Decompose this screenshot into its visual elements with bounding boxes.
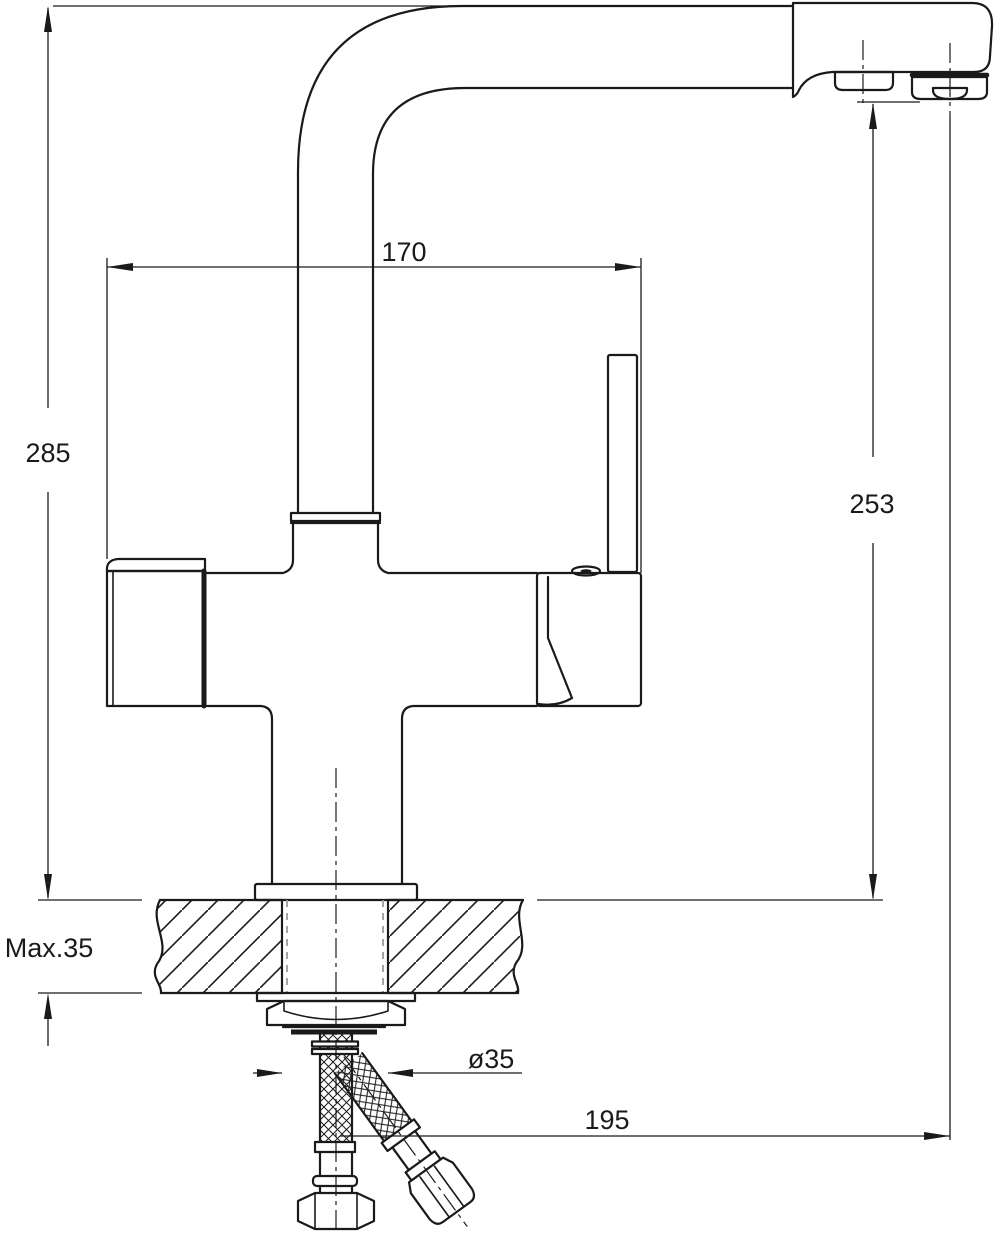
hose-collar-disc-lower: [312, 1049, 358, 1054]
dim-285-arrow-down: [44, 874, 52, 900]
dim-d35-arrow-right-tip: [257, 1069, 282, 1077]
body-right-profile: [378, 521, 537, 573]
filter-knob-cap: [107, 559, 205, 571]
hose-collar-disc-upper: [312, 1042, 358, 1047]
aerator-outlet: [835, 72, 893, 90]
hose-crimp-plate: [291, 1030, 377, 1035]
dim-170-label: 170: [381, 237, 426, 267]
spout-inner-curve: [373, 88, 793, 513]
dim-max35-label: Max.35: [5, 933, 94, 963]
body-left-profile: [207, 521, 293, 573]
dim-253-arrow-up: [869, 103, 877, 129]
centerlines-group: [336, 40, 950, 1232]
filter-knob-body: [107, 571, 205, 706]
dim-195-arrow-right: [924, 1132, 950, 1140]
body-right-bottom: [402, 706, 537, 884]
vertical-hose-collar: [313, 1176, 357, 1186]
dim-285-arrow-up: [44, 6, 52, 32]
dim-max-thickness: Max.35: [5, 900, 142, 1046]
faucet-outline-group: [107, 3, 992, 900]
dim-195-label: 195: [584, 1105, 629, 1135]
countertop-section: [155, 900, 523, 993]
dim-253-arrow-down: [869, 874, 877, 900]
dim-hole-diameter: ø35: [253, 1044, 522, 1077]
handle-pivot-pin: [581, 569, 592, 573]
dim-d35-arrow-left-tip: [388, 1069, 413, 1077]
faucet-dimension-drawing: 285 170 253 Max.35 ø35: [0, 0, 1000, 1236]
handle-base-contour: [538, 577, 572, 705]
dim-max35-arrow-up: [44, 993, 52, 1019]
countertop-hatch-left: [155, 900, 282, 993]
main-handle-lever: [608, 355, 637, 572]
dim-overall-height: 285: [25, 6, 465, 900]
dim-outlet-height: 253: [537, 102, 920, 900]
spout-flange: [291, 513, 380, 521]
vertical-hose-ferrule: [315, 1142, 355, 1152]
countertop-hatch-right: [388, 900, 523, 993]
dim-285-label: 285: [25, 438, 70, 468]
body-left-bottom: [207, 706, 272, 884]
main-handle-base: [537, 573, 641, 706]
dim-253-label: 253: [849, 489, 894, 519]
dim-d35-label: ø35: [468, 1044, 515, 1074]
dim-170-arrow-left: [107, 263, 133, 271]
technical-drawing-canvas: 285 170 253 Max.35 ø35: [0, 0, 1000, 1236]
dim-170-arrow-right: [615, 263, 641, 271]
fastening-group: [257, 993, 488, 1236]
